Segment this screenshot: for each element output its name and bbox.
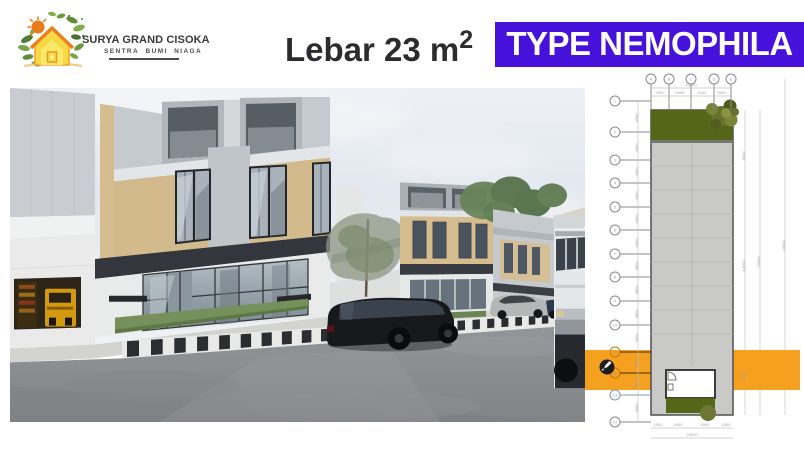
svg-text:5: 5 <box>614 205 617 210</box>
svg-text:4100: 4100 <box>698 90 708 95</box>
svg-text:1500: 1500 <box>722 422 732 427</box>
svg-text:4000: 4000 <box>634 379 639 389</box>
svg-text:1500: 1500 <box>654 422 664 427</box>
svg-text:C: C <box>690 77 693 82</box>
svg-text:3000: 3000 <box>634 214 639 224</box>
svg-text:3000: 3000 <box>634 333 639 343</box>
svg-text:3000: 3000 <box>634 238 639 248</box>
svg-text:10: 10 <box>613 323 618 328</box>
svg-text:5000: 5000 <box>656 90 666 95</box>
svg-text:5000: 5000 <box>718 90 728 95</box>
svg-text:4000: 4000 <box>701 422 711 427</box>
svg-text:14500: 14500 <box>741 260 746 272</box>
svg-text:E: E <box>730 77 733 82</box>
svg-text:4000: 4000 <box>634 403 639 413</box>
svg-text:3: 3 <box>614 158 617 163</box>
svg-text:8: 8 <box>614 275 617 280</box>
svg-text:2: 2 <box>614 130 617 135</box>
svg-text:1: 1 <box>614 99 617 104</box>
svg-text:6000: 6000 <box>676 90 686 95</box>
svg-text:14: 14 <box>613 420 618 425</box>
svg-text:4500: 4500 <box>741 151 746 161</box>
svg-text:3000: 3000 <box>634 167 639 177</box>
svg-text:24500: 24500 <box>781 240 786 252</box>
svg-text:3000: 3000 <box>634 358 639 368</box>
svg-text:23000: 23000 <box>756 256 761 268</box>
svg-text:4: 4 <box>614 181 617 186</box>
svg-text:4500: 4500 <box>634 113 639 123</box>
svg-text:A: A <box>650 77 653 82</box>
svg-text:3000: 3000 <box>634 143 639 153</box>
svg-text:4000: 4000 <box>741 371 746 381</box>
svg-text:13: 13 <box>613 393 618 398</box>
svg-text:B: B <box>668 77 671 82</box>
svg-text:3000: 3000 <box>634 309 639 319</box>
svg-text:4000: 4000 <box>674 422 684 427</box>
svg-text:7: 7 <box>614 252 617 257</box>
svg-text:D: D <box>713 77 716 82</box>
svg-text:3000: 3000 <box>634 285 639 295</box>
svg-text:3000: 3000 <box>634 191 639 201</box>
svg-text:3000: 3000 <box>634 261 639 271</box>
svg-text:6: 6 <box>614 228 617 233</box>
svg-text:23000: 23000 <box>686 432 698 437</box>
svg-text:12: 12 <box>613 371 618 376</box>
svg-text:9: 9 <box>614 299 617 304</box>
svg-text:23000: 23000 <box>685 82 697 87</box>
